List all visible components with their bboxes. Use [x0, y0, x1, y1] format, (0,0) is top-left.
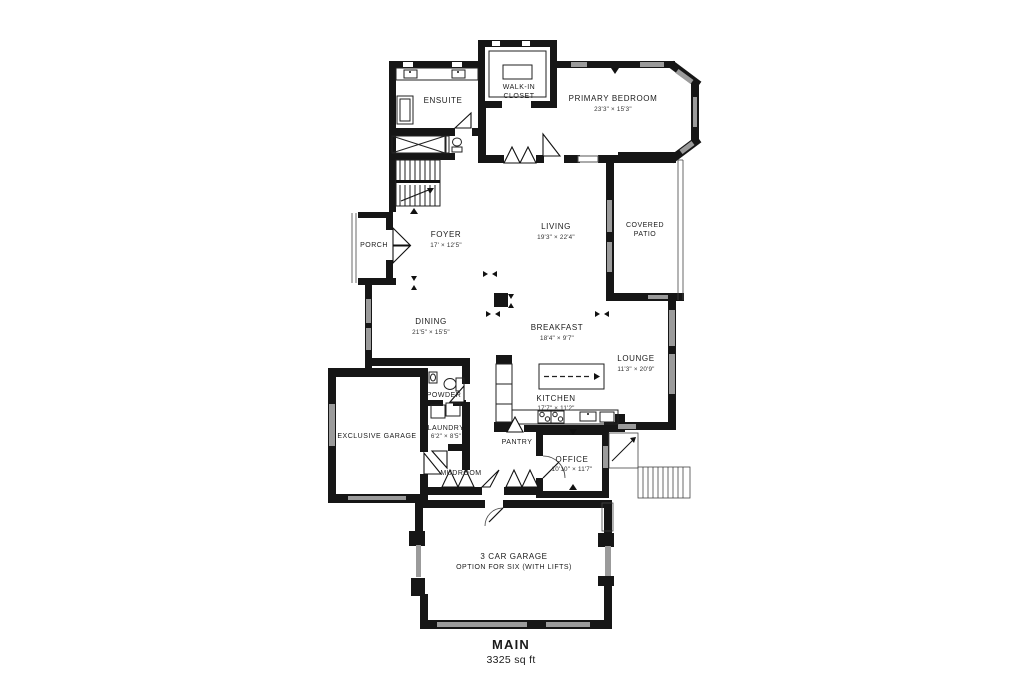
room-dims-living: 19'3" × 22'4"	[537, 234, 575, 241]
closet-island	[503, 65, 532, 79]
mudroom-rear-door	[482, 470, 499, 487]
room-label-primary-bedroom: PRIMARY BEDROOM	[569, 94, 658, 103]
room-dims-laundry: 6'2" × 8'5"	[431, 433, 461, 440]
room-label-three-car-garage: 3 CAR GARAGE	[480, 552, 547, 561]
room-label-office: OFFICE	[556, 455, 589, 464]
kitchen-counter	[512, 410, 618, 424]
room-dims-lounge: 11'3" × 20'9"	[617, 366, 654, 373]
area-label: 3325 sq ft	[486, 654, 535, 666]
room-label-porch: PORCH	[360, 242, 388, 249]
shower	[392, 136, 445, 153]
room-label-covered-patio: COVERED	[626, 222, 664, 229]
ensuite-door	[455, 113, 471, 128]
room-dims-office: 10'10" × 11'7"	[552, 466, 593, 473]
room-label-laundry: LAUNDRY	[428, 425, 465, 432]
front-double-door	[393, 228, 410, 263]
room-label-breakfast: BREAKFAST	[531, 323, 584, 332]
stairs-exterior	[609, 433, 690, 498]
fixtures-layer	[352, 51, 690, 531]
room-label-walk-in-closet: WALK-IN	[503, 84, 535, 91]
room-dims-primary-bedroom: 23'3" × 15'3"	[594, 106, 632, 113]
room-label-ensuite: ENSUITE	[424, 96, 463, 105]
patio-open-edge	[678, 160, 683, 300]
vanity-double-sink	[396, 68, 478, 80]
porch-deck-edge	[352, 213, 356, 283]
room-dims-foyer: 17' × 12'5"	[430, 242, 462, 249]
bedroom-door	[543, 134, 560, 156]
powder-sink	[429, 372, 437, 383]
fireplace	[494, 293, 508, 307]
level-label: MAIN	[492, 637, 530, 652]
footer: MAIN 3325 sq ft	[486, 637, 535, 666]
floor-plan-svg: ENSUITE WALK-IN CLOSET PRIMARY BEDROOM 2…	[0, 0, 1023, 682]
svg-text:PATIO: PATIO	[634, 231, 657, 238]
room-label-mudroom: MUDROOM	[440, 470, 481, 477]
room-label-kitchen: KITCHEN	[536, 394, 575, 403]
svg-text:CLOSET: CLOSET	[503, 93, 534, 100]
room-label-powder: POWDER	[427, 392, 462, 399]
kitchen-island	[539, 364, 604, 389]
room-label-pantry: PANTRY	[502, 439, 533, 446]
room-dims-breakfast: 18'4" × 9'7"	[540, 335, 574, 342]
floor-plan-page: ENSUITE WALK-IN CLOSET PRIMARY BEDROOM 2…	[0, 0, 1023, 682]
windows-layer	[329, 41, 697, 627]
room-dims-dining: 21'5" × 15'5"	[412, 329, 450, 336]
room-label-lounge: LOUNGE	[617, 354, 654, 363]
stairs-main	[396, 160, 440, 206]
room-label-dining: DINING	[415, 317, 447, 326]
garage-entry-door	[485, 508, 503, 526]
room-label-foyer: FOYER	[431, 230, 462, 239]
dishwasher	[600, 412, 614, 422]
hall-closet-bifold-door	[504, 147, 536, 163]
svg-text:OPTION FOR SIX (WITH LIFTS): OPTION FOR SIX (WITH LIFTS)	[456, 564, 572, 571]
kitchen-tall-cabinets	[496, 364, 512, 422]
room-label-living: LIVING	[541, 222, 571, 231]
walls-layer	[328, 40, 699, 629]
room-dims-kitchen: 17'7" × 11'2"	[537, 405, 574, 412]
linen-cabinet	[397, 96, 413, 124]
room-label-exclusive-garage: EXCLUSIVE GARAGE	[337, 433, 416, 440]
toilet-ensuite	[446, 136, 462, 153]
